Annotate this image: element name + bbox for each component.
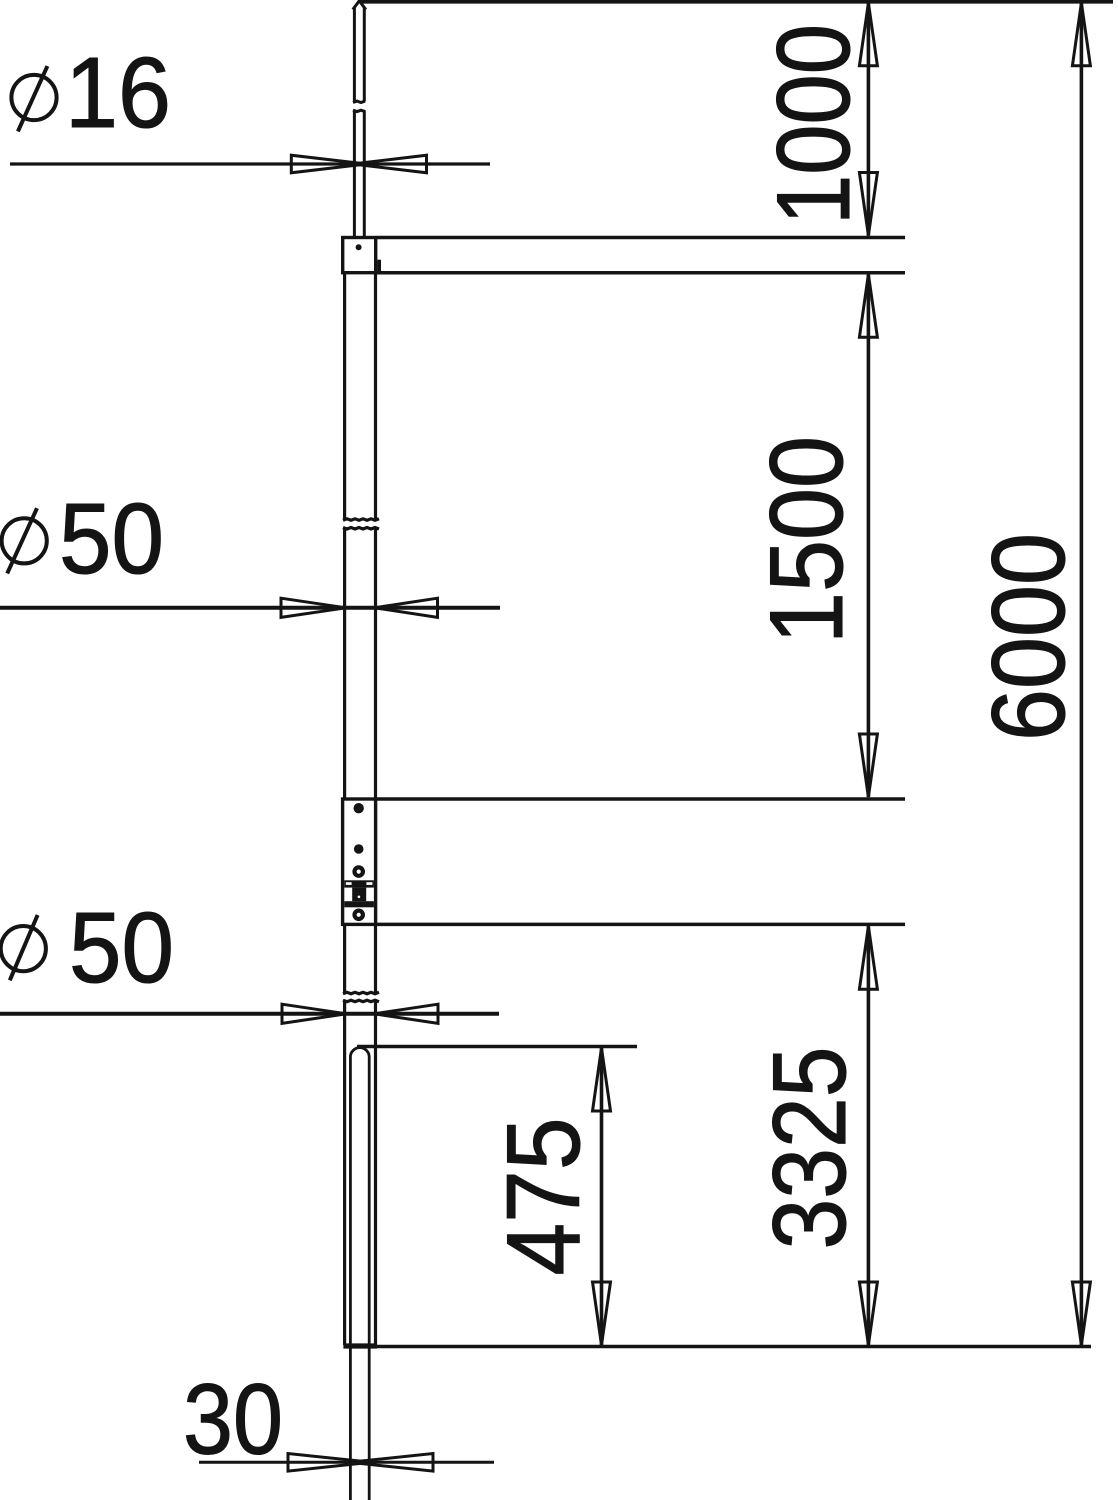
svg-text:475: 475	[486, 1118, 602, 1276]
svg-text:16: 16	[65, 37, 171, 149]
svg-text:1000: 1000	[756, 24, 872, 225]
svg-text:30: 30	[183, 1364, 283, 1476]
svg-text:50: 50	[59, 483, 164, 595]
svg-text:1500: 1500	[749, 436, 865, 644]
svg-text:3325: 3325	[752, 1047, 868, 1250]
svg-text:6000: 6000	[971, 533, 1087, 741]
svg-text:50: 50	[69, 892, 174, 1004]
